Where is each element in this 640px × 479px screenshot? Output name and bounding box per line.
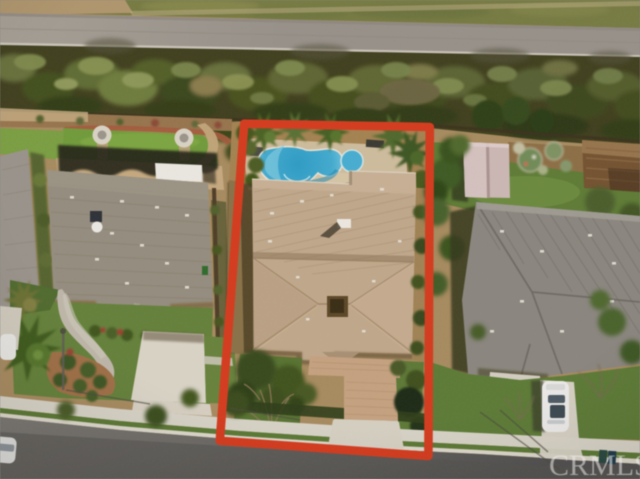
svg-text:CRMLS: CRMLS: [549, 449, 640, 479]
